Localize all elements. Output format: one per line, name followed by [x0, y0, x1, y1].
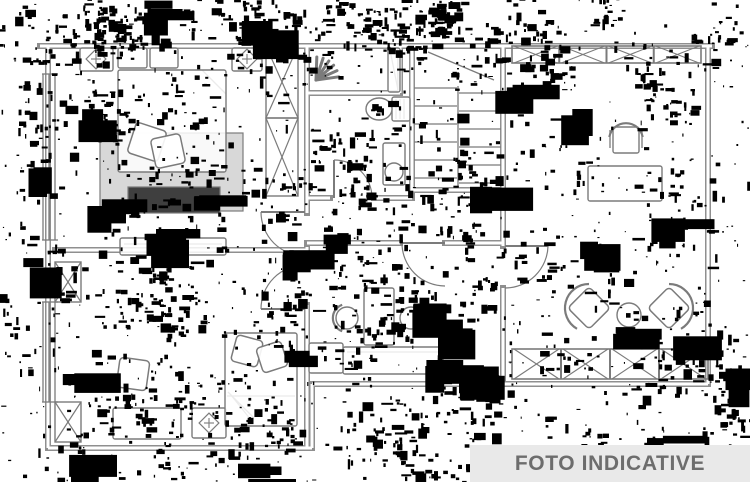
photo-indicative-banner: FOTO INDICATIVE: [470, 445, 750, 482]
floorplan-svg: [0, 0, 750, 482]
banner-label: FOTO INDICATIVE: [515, 452, 705, 476]
floorplan-image: FOTO INDICATIVE: [0, 0, 750, 482]
